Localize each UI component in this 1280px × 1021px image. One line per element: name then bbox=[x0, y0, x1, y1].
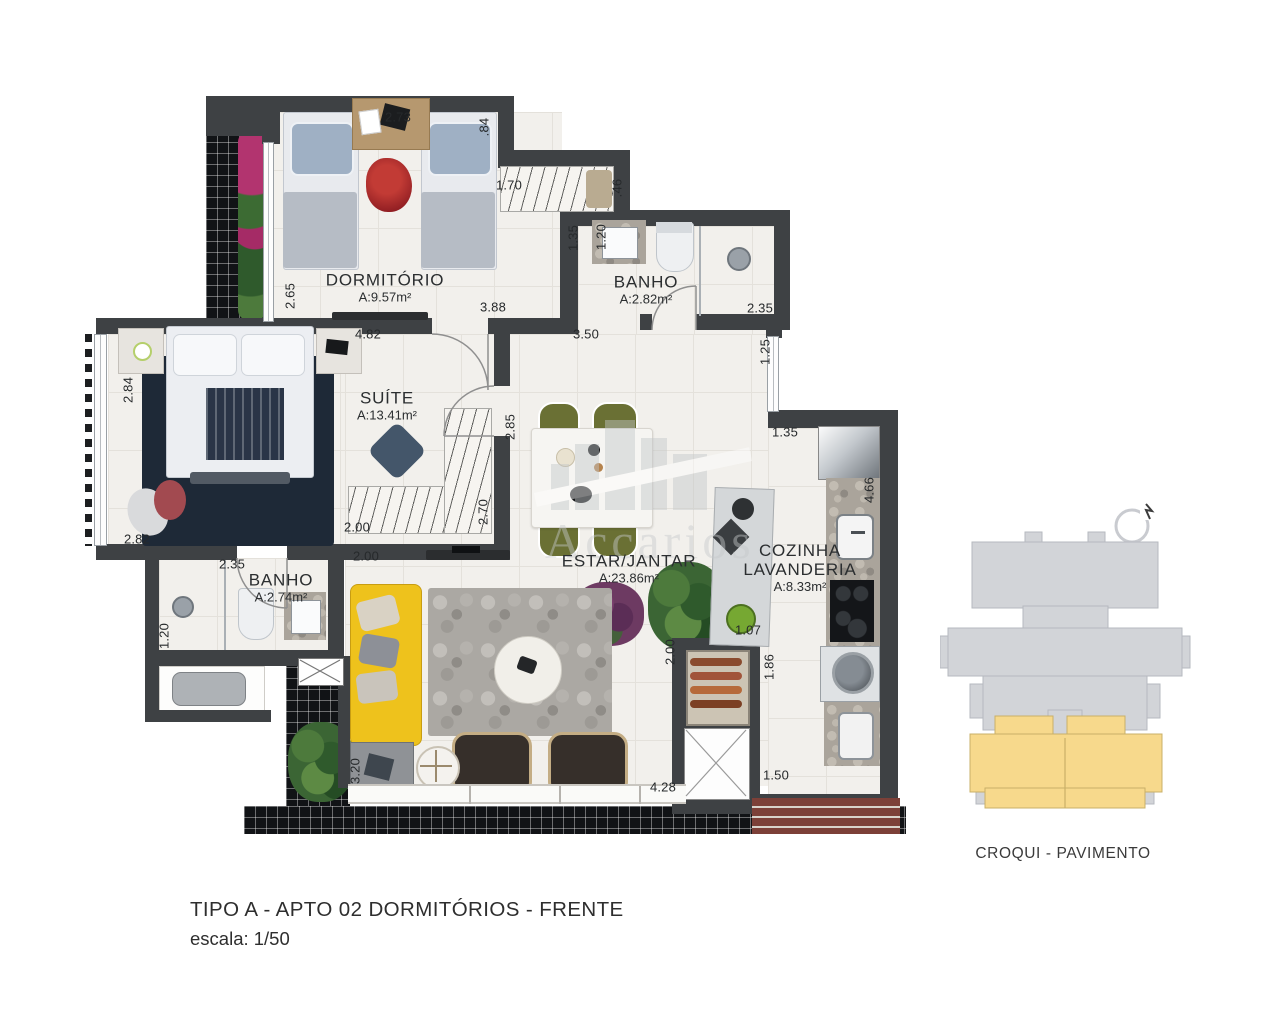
dimension-label: .46 bbox=[610, 179, 625, 198]
dimension-label: 1.20 bbox=[157, 623, 172, 649]
croqui-building bbox=[940, 470, 1200, 830]
dimension-label: 2.70 bbox=[476, 499, 491, 525]
dimension-label: 3.88 bbox=[480, 300, 506, 315]
dimension-label: 1.25 bbox=[758, 339, 773, 365]
dimension-label: 2.84 bbox=[121, 377, 136, 403]
dimension-label: 2.65 bbox=[283, 283, 298, 309]
dimension-label: 2.73 bbox=[385, 110, 411, 125]
plan-title: TIPO A - APTO 02 DORMITÓRIOS - FRENTE bbox=[190, 898, 624, 922]
floorplan-page: { "palette":{"wall":"#3e4144","floor":"#… bbox=[0, 0, 1280, 1021]
croqui-label: CROQUI - PAVIMENTO bbox=[975, 845, 1150, 863]
plan-scale: escala: 1/50 bbox=[190, 928, 624, 950]
dimension-label: 3.50 bbox=[573, 327, 599, 342]
dimension-label: 4.66 bbox=[862, 477, 877, 503]
dimension-label: 2.00 bbox=[344, 520, 370, 535]
title-block: TIPO A - APTO 02 DORMITÓRIOS - FRENTE es… bbox=[190, 898, 624, 950]
dimension-label: 2.35 bbox=[747, 301, 773, 316]
dimension-label: 4.28 bbox=[650, 780, 676, 795]
croqui bbox=[940, 470, 1200, 870]
dimension-label: 4.82 bbox=[355, 327, 381, 342]
dimension-label: 1.35 bbox=[772, 425, 798, 440]
dimension-label: 2.00 bbox=[663, 639, 678, 665]
dimension-label: 2.00 bbox=[353, 549, 379, 564]
dimension-label: 3.20 bbox=[348, 758, 363, 784]
dimension-label: 1.70 bbox=[496, 178, 522, 193]
dimension-label: 1.20 bbox=[594, 224, 609, 250]
dimension-label: 2.82 bbox=[124, 532, 150, 547]
dimension-label: 2.35 bbox=[219, 557, 245, 572]
dimension-label: 1.86 bbox=[762, 654, 777, 680]
dimension-layer: 2.73.841.70.461.351.202.653.882.354.823.… bbox=[0, 0, 910, 860]
dimension-label: 1.35 bbox=[566, 225, 581, 251]
dimension-label: 1.50 bbox=[763, 768, 789, 783]
floor-plan: Accarios DORMITÓRIOA:9.57m²BANHOA:2.82m²… bbox=[0, 0, 910, 860]
dimension-label: .84 bbox=[477, 118, 492, 137]
dimension-label: 2.85 bbox=[503, 414, 518, 440]
dimension-label: 1.07 bbox=[735, 623, 761, 638]
